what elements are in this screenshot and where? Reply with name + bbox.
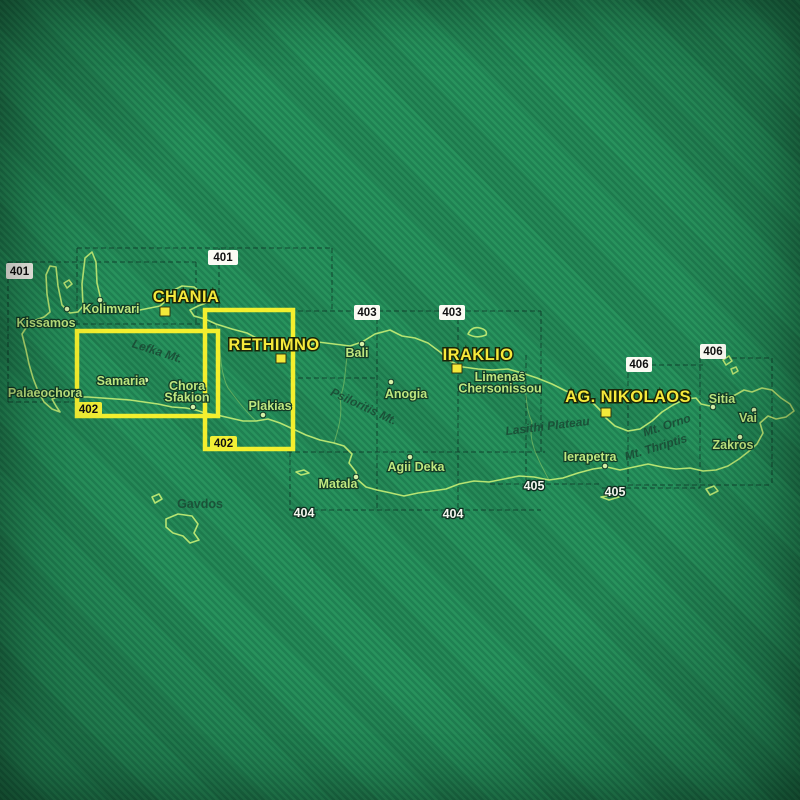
town-dot-ierapetra — [602, 463, 608, 469]
island-label-gavdos: Gavdos — [177, 497, 223, 511]
city-marker-iraklio — [452, 364, 462, 373]
town-label-anogia: Anogia — [385, 387, 428, 401]
sheet-label-401-1: 401 — [6, 263, 33, 279]
sheet-number-text: 405 — [524, 479, 545, 493]
island-gavdopoula — [152, 494, 162, 503]
sheet-label-401-2: 401 — [208, 250, 238, 265]
sheet-number-text: 406 — [629, 359, 648, 371]
island-koufonisi — [706, 486, 718, 495]
map-cover: 401401402402403403404404405405406406Kiss… — [0, 0, 800, 800]
town-label-plakias: Plakias — [248, 399, 291, 413]
town-label-bali: Bali — [346, 346, 369, 360]
town-label-ierapetra: Ierapetra — [564, 450, 618, 464]
town-label-vai: Vai — [739, 411, 757, 425]
town-label-kissamos: Kissamos — [16, 316, 75, 330]
town-dot-anogia — [388, 379, 394, 385]
city-marker-chania — [160, 307, 170, 316]
island-dionysades-2 — [731, 367, 738, 374]
town-label-chora-sfakion: ChoraSfakion — [164, 379, 209, 405]
sheet-label-406-1: 406 — [626, 357, 652, 372]
town-label-limenas-chersonissou: LimenasChersonissou — [458, 370, 541, 396]
sheet-number-text: 401 — [213, 252, 233, 264]
city-label-rethimno: RETHIMNO — [228, 336, 319, 354]
sheet-number-text: 404 — [443, 507, 464, 521]
town-label-zakros: Zakros — [713, 438, 754, 452]
town-label-matala: Matala — [319, 477, 359, 491]
sheet-number-text: 403 — [357, 307, 376, 319]
sheet-number-text: 403 — [442, 307, 461, 319]
sheet-label-404-1: 404 — [294, 506, 315, 520]
island-paximadia — [296, 470, 309, 475]
town-dot-agii-deka — [407, 454, 413, 460]
sheet-label-405-1: 405 — [524, 479, 545, 493]
sheet-label-403-1: 403 — [354, 305, 380, 320]
sheet-label-405-2: 405 — [605, 485, 626, 499]
city-label-iraklio: IRAKLIO — [443, 346, 514, 364]
town-label-kolimvari: Kolimvari — [83, 302, 140, 316]
sheet-number-text: 406 — [703, 346, 722, 358]
sheet-label-402-2: 402 — [210, 436, 237, 451]
town-label-agii-deka: Agii Deka — [388, 460, 446, 474]
sheet-label-406-2: 406 — [700, 344, 726, 359]
feature-label-lasithi-plateau: Lasithi Plateau — [505, 414, 591, 438]
city-marker-rethimno — [276, 354, 286, 363]
town-dot-plakias — [260, 412, 266, 418]
town-label-samaria: Samaria — [97, 374, 147, 388]
island-dia — [468, 328, 486, 337]
city-marker-ag-nikolaos — [601, 408, 611, 417]
crete-sheet-index-map: 401401402402403403404404405405406406Kiss… — [0, 0, 800, 800]
sheet-label-404-2: 404 — [443, 507, 464, 521]
island-gavdos — [166, 514, 199, 543]
town-dot-kissamos — [64, 306, 70, 312]
feature-label-lefka-mt: Lefka Mt. — [130, 337, 184, 366]
sheet-label-402-1: 402 — [75, 402, 102, 417]
town-label-palaeochora: Palaeochora — [8, 386, 83, 400]
sheet-number-text: 402 — [79, 404, 98, 416]
town-label-sitia: Sitia — [709, 392, 736, 406]
sheet-number-text: 401 — [10, 266, 30, 278]
city-label-chania: CHANIA — [153, 288, 220, 306]
island-gramvousa-islet — [64, 280, 72, 288]
sheet-number-text: 405 — [605, 485, 626, 499]
sheet-number-text: 402 — [214, 438, 233, 450]
sheet-number-text: 404 — [294, 506, 315, 520]
sheet-label-403-2: 403 — [439, 305, 465, 320]
city-label-ag-nikolaos: AG. NIKOLAOS — [565, 388, 691, 406]
town-dot-chora-sfakion — [190, 404, 196, 410]
